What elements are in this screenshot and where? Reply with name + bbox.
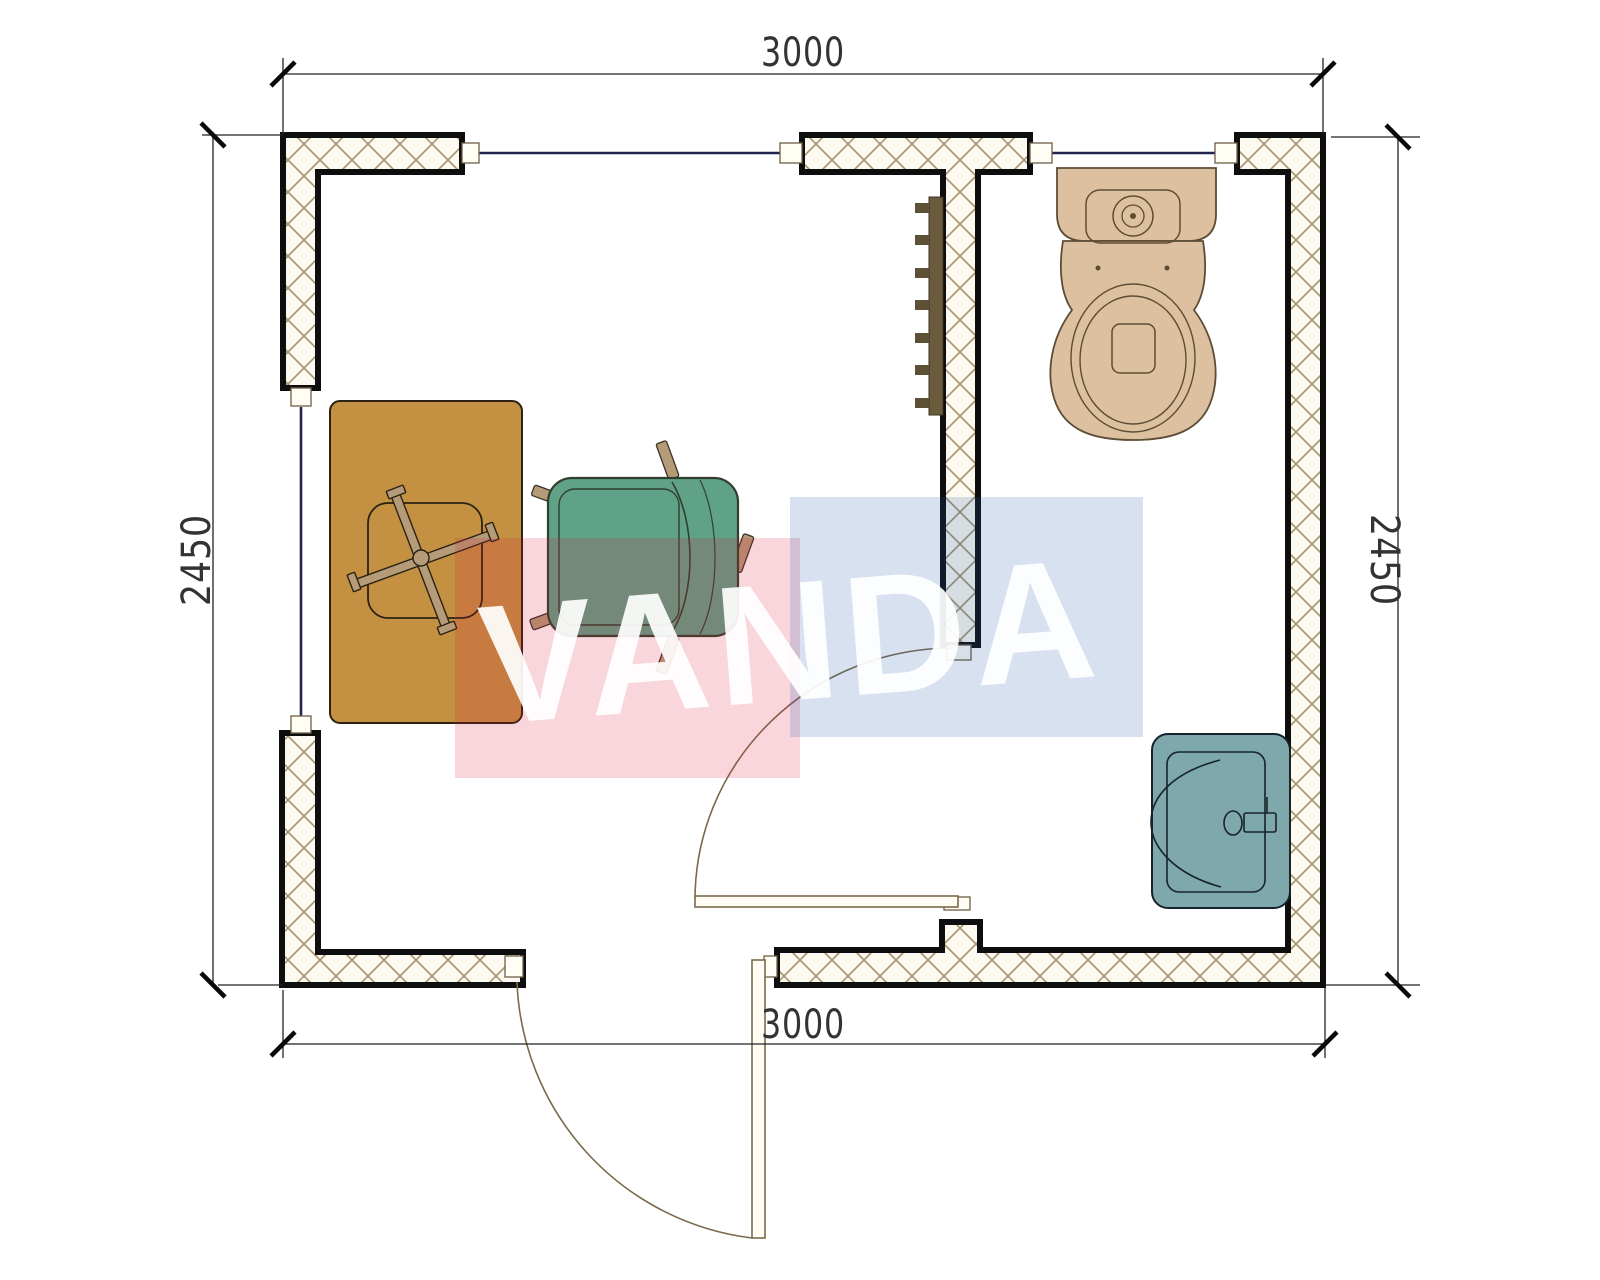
radiator-body xyxy=(929,197,943,415)
door-swing-arc xyxy=(517,982,752,1238)
radiator-fins xyxy=(915,203,929,408)
chair-hub xyxy=(413,550,429,566)
floor-plan-canvas: 3000 3000 2450 2450 VANDA xyxy=(0,0,1600,1280)
watermark: VANDA xyxy=(455,497,1143,778)
toilet-tank xyxy=(1057,168,1216,241)
radiator xyxy=(915,197,943,415)
dim-label-right: 2450 xyxy=(1361,514,1407,606)
jamb xyxy=(291,716,311,733)
jamb xyxy=(1030,143,1052,163)
jamb xyxy=(764,956,777,977)
dim-label-bottom: 3000 xyxy=(761,1002,845,1048)
jamb xyxy=(505,956,523,977)
dim-label-top: 3000 xyxy=(761,30,845,76)
sink xyxy=(1151,734,1290,908)
floor-plan-page: 3000 3000 2450 2450 VANDA xyxy=(0,0,1600,1280)
jamb xyxy=(291,388,311,406)
door-leaf xyxy=(695,896,958,907)
jamb xyxy=(1215,143,1237,163)
toilet xyxy=(1050,168,1216,440)
sink-body xyxy=(1152,734,1290,908)
door-exterior xyxy=(517,960,765,1238)
jamb xyxy=(780,143,802,163)
jamb xyxy=(462,143,479,163)
dim-label-left: 2450 xyxy=(174,514,220,606)
toilet-bowl xyxy=(1050,241,1215,440)
wall-top-left xyxy=(283,135,462,388)
